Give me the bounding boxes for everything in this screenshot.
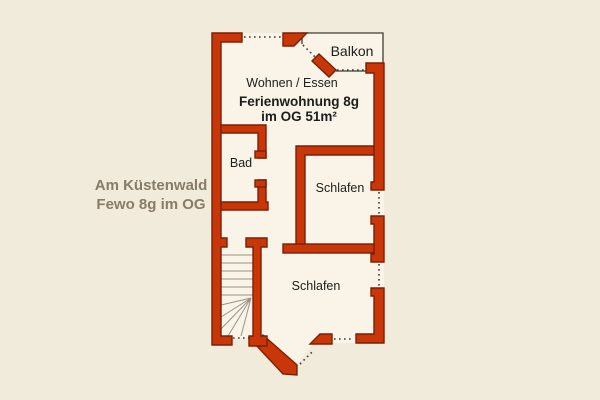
wall-bath-door-jamb-top <box>255 151 266 158</box>
wall-bath-door-jamb-bottom <box>255 180 266 187</box>
bath-label: Bad <box>230 156 252 170</box>
floor-plan-svg: Balkon Wohnen / Essen Ferienwohnung 8g i… <box>0 0 600 400</box>
balcony-label: Balkon <box>331 43 374 59</box>
bedroom2-label: Schlafen <box>292 279 341 293</box>
floor-plan-page: Balkon Wohnen / Essen Ferienwohnung 8g i… <box>0 0 600 400</box>
bedroom1-label: Schlafen <box>316 181 365 195</box>
plan-title: Ferienwohnung 8g <box>239 94 359 109</box>
side-label-line2: Fewo 8g im OG <box>96 196 205 213</box>
side-label-line1: Am Küstenwald <box>95 177 208 194</box>
plan-subtitle: im OG 51m² <box>261 109 337 124</box>
wall-bedroom-divider <box>283 244 374 253</box>
living-room-label: Wohnen / Essen <box>246 76 338 90</box>
